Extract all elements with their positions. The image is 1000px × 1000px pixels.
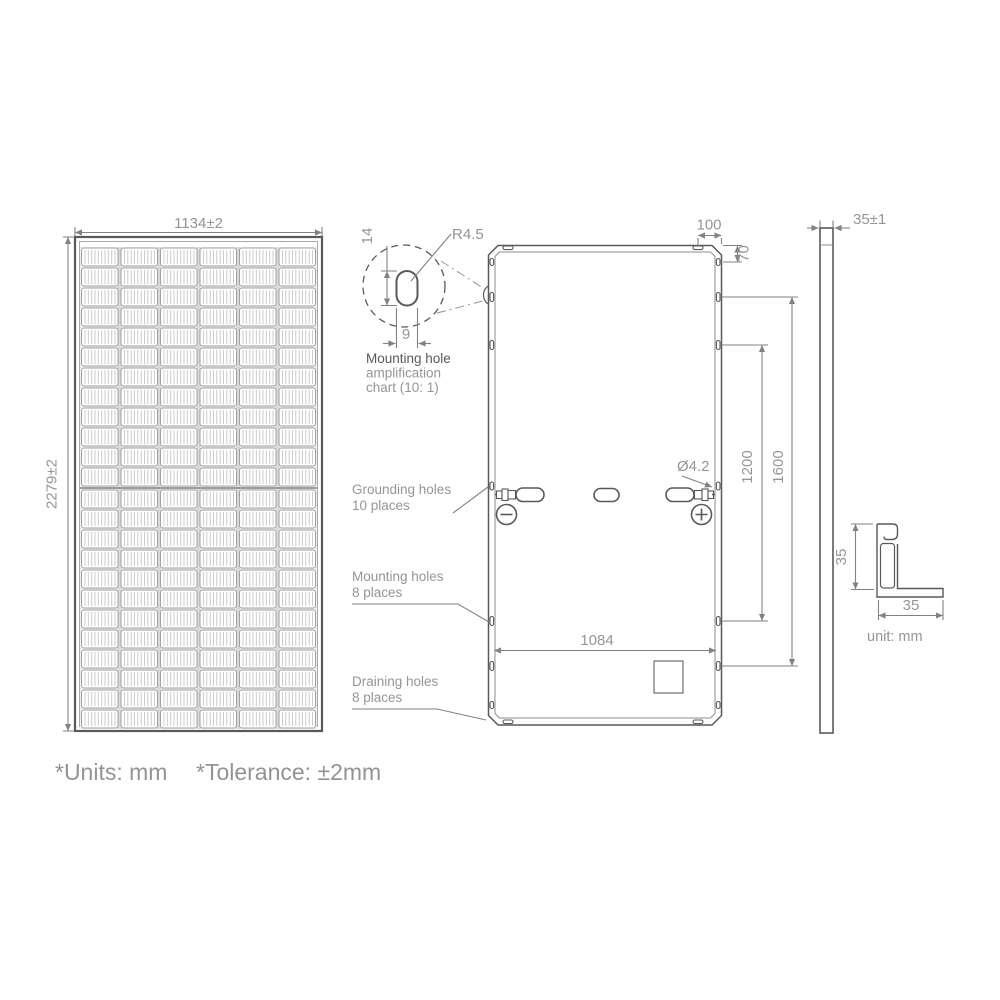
dim-frame-height-label: 35 — [833, 549, 850, 566]
front-height-dim-label: 2279±2 — [44, 459, 61, 509]
frame-section-detail: 35 35 unit: mm — [833, 524, 943, 645]
draining-label-line1: Draining holes — [352, 674, 439, 689]
dim-1600-label: 1600 — [770, 450, 787, 483]
dim-mounting-spans: 1200 1600 — [722, 297, 798, 666]
side-profile-bar — [820, 228, 833, 733]
cell-grid-top-half — [80, 247, 317, 487]
frame-section-outer-profile — [877, 524, 943, 597]
dim-70-label: 70 — [736, 245, 753, 262]
draining-holes-callout: Draining holes 8 places — [352, 674, 486, 720]
dim-frame-height: 35 — [833, 524, 874, 590]
radius-leader-line — [411, 234, 451, 281]
detail-reference-lines — [437, 261, 483, 313]
dim-thickness-label: 35±1 — [853, 211, 886, 228]
dim-1200-label: 1200 — [739, 450, 756, 483]
radius-label: R4.5 — [452, 226, 484, 243]
mounting-slot-shape — [397, 271, 418, 306]
negative-terminal-icon — [497, 505, 517, 525]
detail-caption-line3: chart (10: 1) — [366, 380, 439, 395]
front-view: 1134±2 2279±2 — [44, 215, 323, 731]
dim-100-label: 100 — [696, 217, 721, 234]
draining-label-line2: 8 places — [352, 690, 403, 705]
slot-height-dimension: 14 — [359, 228, 397, 306]
dim-frame-width-label: 35 — [903, 597, 920, 614]
junction-box — [594, 489, 619, 502]
footnote-tolerance: *Tolerance: ±2mm — [196, 759, 381, 785]
grounding-label-line2: 10 places — [352, 498, 410, 513]
frame-section-glass-groove — [877, 524, 898, 540]
unit-note: unit: mm — [867, 629, 923, 645]
mounting-label-line2: 8 places — [352, 585, 403, 600]
dim-frame-width: 35 — [879, 597, 944, 620]
detail-caption-line2: amplification — [366, 366, 441, 381]
slot-height-label: 14 — [359, 228, 376, 245]
solar-panel-technical-drawing: 1134±2 2279±2 R4.5 14 9 Mounti — [0, 0, 1000, 1000]
grounding-label-line1: Grounding holes — [352, 482, 451, 497]
dim-1084-label: 1084 — [580, 632, 613, 649]
negative-connector-body — [516, 488, 544, 502]
negative-cable-plug — [497, 491, 503, 499]
front-height-dimension: 2279±2 — [44, 237, 75, 731]
mounting-hole-detail: R4.5 14 9 Mounting hole amplification ch… — [359, 226, 499, 395]
grounding-holes-callout: Grounding holes 10 places — [352, 482, 488, 513]
dim-thickness: 35±1 — [807, 211, 886, 228]
dim-corner-hole-offset: 100 — [696, 217, 721, 247]
back-view: 100 70 1200 1600 1084 Ø4.2 Grounding ho — [352, 217, 798, 726]
front-width-dim-label: 1134±2 — [174, 215, 223, 232]
back-panel-outline — [489, 246, 722, 726]
positive-terminal-icon — [692, 505, 712, 525]
side-view: 35±1 — [807, 211, 886, 733]
frame-section-chamber — [881, 544, 895, 589]
footnotes: *Units: mm *Tolerance: ±2mm — [55, 759, 381, 785]
front-width-dimension: 1134±2 — [75, 215, 322, 236]
hole-diameter-label: Ø4.2 — [677, 458, 710, 475]
nameplate-label — [654, 661, 683, 693]
cell-grid — [80, 247, 317, 729]
cell-grid-bottom-half — [80, 489, 317, 729]
mounting-label-line1: Mounting holes — [352, 569, 444, 584]
slot-width-label: 9 — [402, 326, 410, 343]
drawing-svg: 1134±2 2279±2 R4.5 14 9 Mounti — [0, 0, 1000, 1000]
slot-width-dimension: 9 — [383, 308, 431, 348]
mounting-holes-callout: Mounting holes 8 places — [352, 569, 489, 622]
detail-caption-line1: Mounting hole — [366, 351, 451, 366]
dim-top-hole-offset: 70 — [723, 245, 753, 262]
positive-connector-body — [666, 488, 694, 502]
footnote-units: *Units: mm — [55, 759, 167, 785]
